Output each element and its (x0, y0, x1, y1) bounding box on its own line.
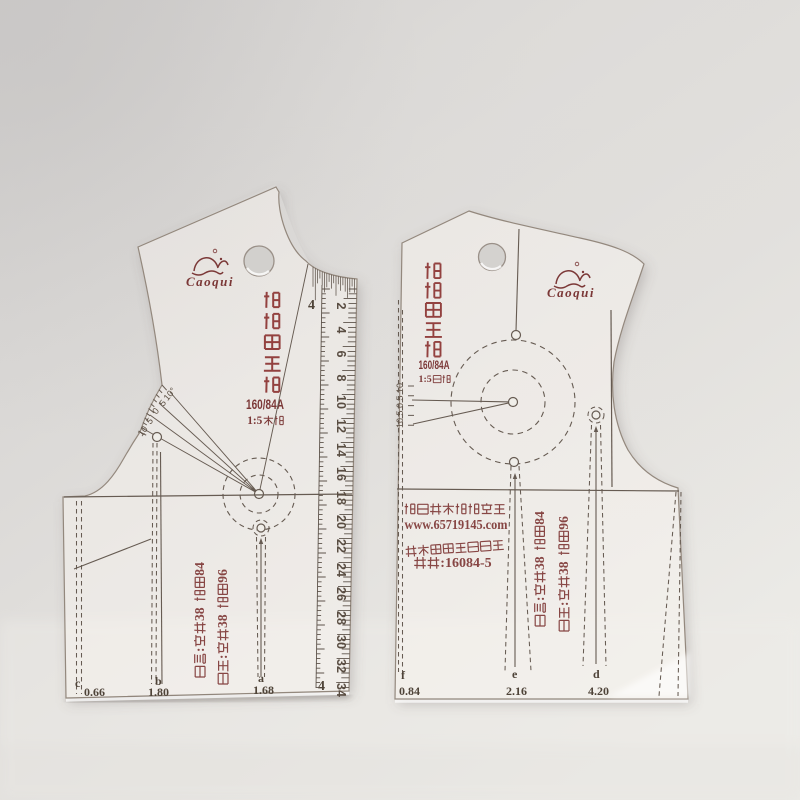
svg-text:8: 8 (334, 375, 348, 382)
svg-text:0.66: 0.66 (84, 685, 105, 699)
svg-text:1.80: 1.80 (148, 685, 169, 699)
svg-text::: : (556, 601, 571, 606)
svg-text::: : (532, 596, 547, 601)
svg-text:1.68: 1.68 (253, 683, 274, 697)
svg-text:26: 26 (334, 587, 348, 601)
svg-text:4.20: 4.20 (588, 684, 609, 698)
svg-text:2.16: 2.16 (506, 684, 527, 698)
svg-text:e: e (512, 667, 518, 681)
svg-text::: : (215, 654, 230, 659)
svg-text:0.84: 0.84 (399, 684, 420, 698)
svg-text:10: 10 (334, 395, 348, 409)
svg-text:28: 28 (334, 611, 348, 625)
svg-text:4: 4 (334, 327, 348, 334)
svg-text:Caoqui: Caoqui (186, 274, 234, 289)
svg-text:84: 84 (532, 511, 547, 525)
svg-text:www.65719145.com: www.65719145.com (405, 517, 508, 532)
svg-text:20: 20 (334, 515, 348, 529)
svg-text:38: 38 (532, 556, 547, 570)
svg-text:c: c (75, 676, 81, 690)
svg-text:2: 2 (334, 303, 348, 310)
svg-text:38: 38 (556, 561, 571, 575)
svg-text:Caoqui: Caoqui (547, 285, 595, 300)
svg-text:12: 12 (334, 419, 348, 433)
svg-text:18: 18 (334, 491, 348, 505)
svg-text:96: 96 (556, 516, 571, 530)
svg-text:38: 38 (192, 607, 207, 621)
svg-text:22: 22 (334, 539, 348, 553)
svg-text:34: 34 (334, 683, 348, 697)
svg-text:38: 38 (215, 614, 230, 628)
svg-text:84: 84 (192, 562, 207, 576)
svg-text:d: d (593, 667, 600, 681)
svg-text:4: 4 (308, 298, 315, 313)
svg-text::: : (192, 647, 207, 652)
svg-text:160/84A: 160/84A (419, 358, 450, 372)
svg-text:14: 14 (334, 443, 348, 457)
svg-text:96: 96 (215, 569, 230, 583)
svg-text:16: 16 (334, 467, 348, 481)
svg-text:1:5: 1:5 (247, 415, 262, 427)
svg-text:4: 4 (318, 679, 325, 694)
svg-text:1:5: 1:5 (419, 374, 432, 385)
svg-text:32: 32 (334, 659, 348, 673)
svg-text:30: 30 (334, 635, 348, 649)
svg-text:24: 24 (334, 563, 348, 577)
svg-text::16084-5: :16084-5 (440, 556, 491, 571)
svg-text:6: 6 (334, 351, 348, 358)
svg-text:10 5 0 5 10: 10 5 0 5 10 (395, 383, 405, 428)
